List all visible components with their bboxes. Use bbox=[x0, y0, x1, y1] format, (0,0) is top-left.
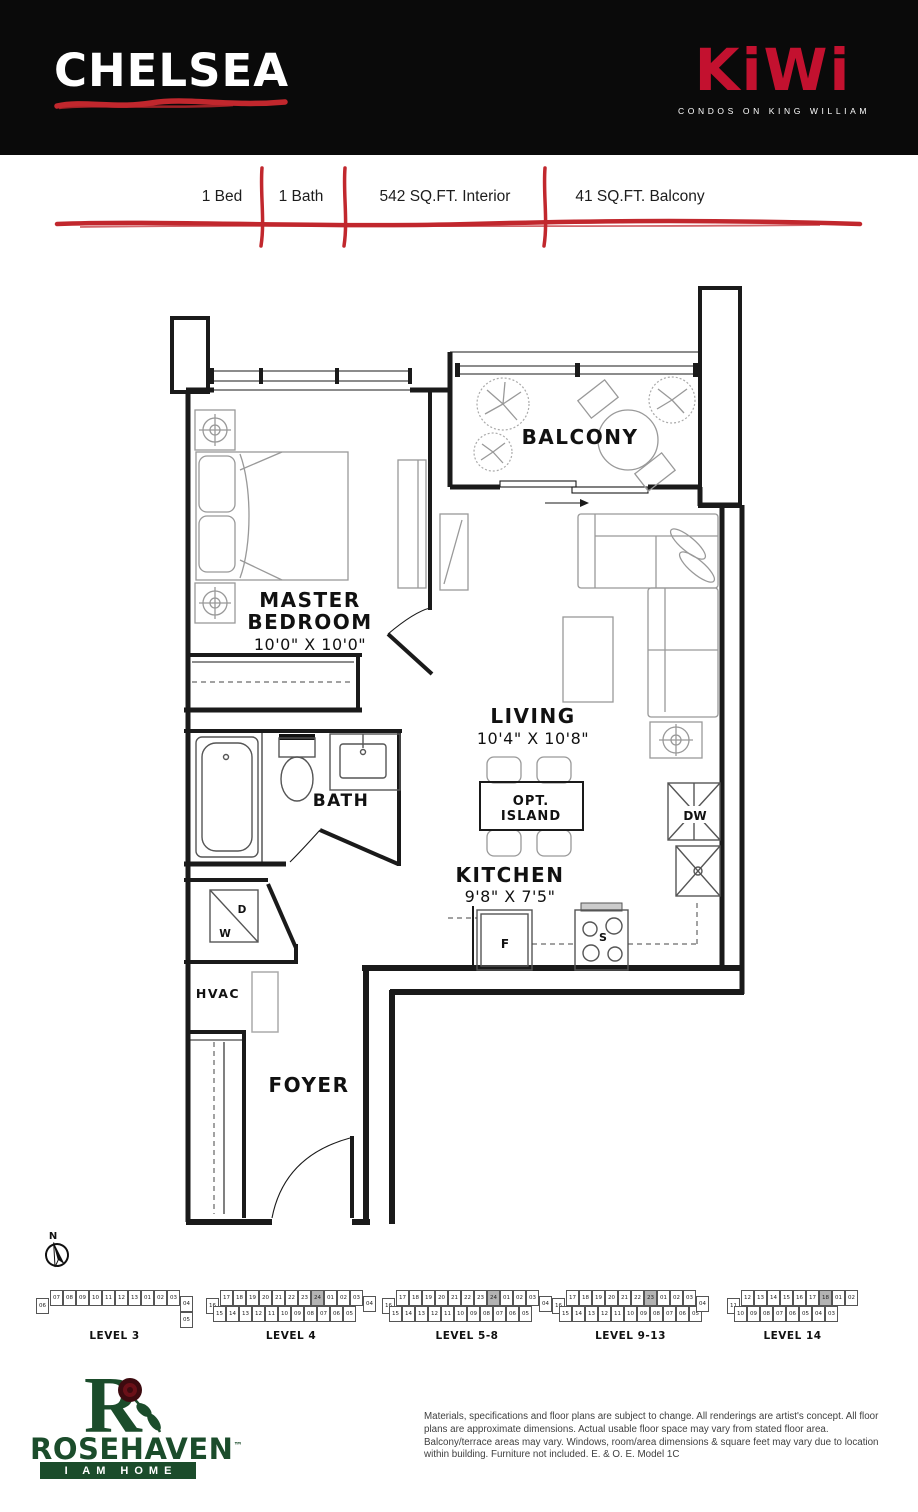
unit-cell-05: 05 bbox=[799, 1306, 812, 1322]
unit-cell-06: 06 bbox=[36, 1298, 49, 1314]
label-dryer: D bbox=[238, 904, 247, 916]
unit-cell-17: 17 bbox=[396, 1290, 409, 1306]
entry-door bbox=[272, 1136, 352, 1218]
washer-dryer bbox=[210, 890, 258, 942]
shrub-bottom-left bbox=[474, 433, 512, 471]
side-table-lamp bbox=[650, 722, 702, 758]
unit-cell-14: 14 bbox=[402, 1306, 415, 1322]
label-washer: W bbox=[219, 928, 231, 940]
page-title: CHELSEA bbox=[54, 44, 289, 97]
label-hvac: HVAC bbox=[196, 986, 240, 1001]
label-island-1: OPT. bbox=[513, 794, 549, 809]
unit-cell-10: 10 bbox=[89, 1290, 102, 1306]
unit-cell-24: 24 bbox=[487, 1290, 500, 1306]
unit-cell-20: 20 bbox=[435, 1290, 448, 1306]
unit-cell-13: 13 bbox=[585, 1306, 598, 1322]
bedroom-door bbox=[388, 608, 432, 674]
unit-cell-02: 02 bbox=[154, 1290, 167, 1306]
unit-cell-07: 07 bbox=[663, 1306, 676, 1322]
keyplan-label: LEVEL 4 bbox=[266, 1330, 316, 1342]
unit-cell-17: 17 bbox=[806, 1290, 819, 1306]
unit-cell-02: 02 bbox=[513, 1290, 526, 1306]
unit-cell-04: 04 bbox=[696, 1296, 709, 1312]
unit-cell-07: 07 bbox=[493, 1306, 506, 1322]
label-island-2: ISLAND bbox=[501, 809, 561, 824]
builder-name-text: ROSEHAVEN bbox=[30, 1432, 233, 1466]
unit-cell-06: 06 bbox=[330, 1306, 343, 1322]
unit-cell-12: 12 bbox=[598, 1306, 611, 1322]
bathtub bbox=[196, 733, 262, 862]
toilet bbox=[279, 734, 315, 801]
unit-cell-04: 04 bbox=[539, 1296, 552, 1312]
unit-cell-06: 06 bbox=[786, 1306, 799, 1322]
unit-cell-22: 22 bbox=[631, 1290, 644, 1306]
brand-logo-word: KiWi bbox=[678, 40, 868, 100]
sofa-sectional bbox=[578, 514, 718, 717]
unit-cell-13: 13 bbox=[754, 1290, 767, 1306]
unit-cell-01: 01 bbox=[832, 1290, 845, 1306]
label-kitchen: KITCHEN bbox=[456, 863, 565, 887]
unit-cell-22: 22 bbox=[285, 1290, 298, 1306]
unit-cell-13: 13 bbox=[239, 1306, 252, 1322]
hvac-shelf bbox=[252, 972, 278, 1032]
compass-north-label: N bbox=[49, 1231, 57, 1242]
floorplan-sheet: CHELSEA KiWi CONDOS ON KING WILLIAM 1 Be… bbox=[0, 0, 918, 1512]
unit-cell-11: 11 bbox=[102, 1290, 115, 1306]
kitchen-sink bbox=[676, 846, 720, 896]
coffee-table bbox=[563, 617, 613, 702]
label-living-dims: 10'4" X 10'8" bbox=[477, 729, 589, 748]
label-master-bedroom-2: BEDROOM bbox=[247, 610, 372, 634]
unit-cell-10: 10 bbox=[454, 1306, 467, 1322]
unit-cell-05: 05 bbox=[343, 1306, 356, 1322]
label-kitchen-dims: 9'8" X 7'5" bbox=[465, 887, 556, 906]
balcony-sliding-door bbox=[500, 481, 648, 507]
label-stove: S bbox=[599, 931, 607, 944]
label-living: LIVING bbox=[490, 704, 575, 728]
unit-cell-09: 09 bbox=[747, 1306, 760, 1322]
bedroom-closet bbox=[192, 662, 354, 682]
unit-cell-09: 09 bbox=[291, 1306, 304, 1322]
unit-cell-24: 24 bbox=[311, 1290, 324, 1306]
floorplan-drawing: N MASTER BEDROOM 10'0" X 10'0" BALCONY L… bbox=[0, 268, 918, 1278]
unit-cell-10: 10 bbox=[624, 1306, 637, 1322]
unit-cell-15: 15 bbox=[559, 1306, 572, 1322]
unit-cell-04: 04 bbox=[180, 1296, 193, 1312]
label-master-bedroom-1: MASTER bbox=[259, 588, 361, 612]
unit-cell-08: 08 bbox=[760, 1306, 773, 1322]
unit-cell-18: 18 bbox=[233, 1290, 246, 1306]
unit-cell-04: 04 bbox=[812, 1306, 825, 1322]
shrub-top-left bbox=[477, 378, 529, 430]
unit-cell-12: 12 bbox=[252, 1306, 265, 1322]
compass: N bbox=[43, 1231, 70, 1268]
unit-cell-15: 15 bbox=[213, 1306, 226, 1322]
label-bath: BATH bbox=[313, 791, 370, 811]
label-dishwasher: DW bbox=[683, 809, 706, 823]
label-balcony: BALCONY bbox=[522, 425, 639, 449]
title-brush-underline bbox=[53, 96, 293, 116]
unit-cell-08: 08 bbox=[480, 1306, 493, 1322]
builder-tagline: I AM HOME bbox=[59, 1465, 178, 1477]
brand-logo-tagline: CONDOS ON KING WILLIAM bbox=[678, 106, 868, 116]
unit-cell-22: 22 bbox=[461, 1290, 474, 1306]
builder-tm: ™ bbox=[233, 1441, 243, 1451]
tv-cabinet bbox=[440, 514, 468, 590]
counter-line bbox=[448, 900, 697, 944]
unit-cell-20: 20 bbox=[605, 1290, 618, 1306]
label-fridge: F bbox=[501, 937, 509, 951]
label-foyer: FOYER bbox=[269, 1073, 350, 1097]
bed bbox=[196, 452, 348, 580]
unit-cell-21: 21 bbox=[618, 1290, 631, 1306]
foyer-closet bbox=[190, 1040, 242, 1214]
keyplan-label: LEVEL 9-13 bbox=[595, 1330, 666, 1342]
unit-cell-08: 08 bbox=[304, 1306, 317, 1322]
disclaimer-text: Materials, specifications and floor plan… bbox=[424, 1411, 886, 1462]
unit-cell-10: 10 bbox=[734, 1306, 747, 1322]
unit-cell-04: 04 bbox=[363, 1296, 376, 1312]
unit-cell-21: 21 bbox=[448, 1290, 461, 1306]
unit-cell-23: 23 bbox=[474, 1290, 487, 1306]
unit-cell-08: 08 bbox=[63, 1290, 76, 1306]
unit-cell-14: 14 bbox=[572, 1306, 585, 1322]
keyplan-label: LEVEL 5-8 bbox=[436, 1330, 499, 1342]
unit-cell-17: 17 bbox=[220, 1290, 233, 1306]
unit-cell-01: 01 bbox=[657, 1290, 670, 1306]
unit-cell-18: 18 bbox=[819, 1290, 832, 1306]
keyplan-label: LEVEL 14 bbox=[763, 1330, 821, 1342]
unit-cell-07: 07 bbox=[773, 1306, 786, 1322]
spec-brush-rules bbox=[0, 158, 918, 268]
unit-cell-12: 12 bbox=[428, 1306, 441, 1322]
unit-cell-16: 16 bbox=[793, 1290, 806, 1306]
unit-cell-21: 21 bbox=[272, 1290, 285, 1306]
bath-door bbox=[290, 830, 398, 864]
brand-logo: KiWi CONDOS ON KING WILLIAM bbox=[678, 40, 868, 116]
unit-cell-12: 12 bbox=[741, 1290, 754, 1306]
nightstand-top bbox=[195, 410, 235, 450]
unit-cell-10: 10 bbox=[278, 1306, 291, 1322]
unit-cell-01: 01 bbox=[500, 1290, 513, 1306]
unit-cell-07: 07 bbox=[317, 1306, 330, 1322]
unit-cell-12: 12 bbox=[115, 1290, 128, 1306]
dresser bbox=[398, 460, 426, 588]
unit-cell-09: 09 bbox=[637, 1306, 650, 1322]
unit-cell-03: 03 bbox=[683, 1290, 696, 1306]
balcony-railing bbox=[455, 363, 698, 377]
unit-cell-15: 15 bbox=[780, 1290, 793, 1306]
unit-cell-17: 17 bbox=[566, 1290, 579, 1306]
header: CHELSEA KiWi CONDOS ON KING WILLIAM bbox=[0, 0, 918, 155]
unit-cell-03: 03 bbox=[350, 1290, 363, 1306]
unit-cell-11: 11 bbox=[441, 1306, 454, 1322]
unit-cell-09: 09 bbox=[467, 1306, 480, 1322]
unit-cell-03: 03 bbox=[167, 1290, 180, 1306]
unit-cell-19: 19 bbox=[592, 1290, 605, 1306]
bedroom-window bbox=[210, 368, 412, 390]
unit-cell-09: 09 bbox=[76, 1290, 89, 1306]
unit-cell-07: 07 bbox=[50, 1290, 63, 1306]
unit-cell-13: 13 bbox=[128, 1290, 141, 1306]
unit-cell-06: 06 bbox=[676, 1306, 689, 1322]
label-master-bedroom-dims: 10'0" X 10'0" bbox=[254, 635, 366, 654]
unit-cell-19: 19 bbox=[422, 1290, 435, 1306]
vanity-sink bbox=[330, 734, 400, 790]
unit-cell-01: 01 bbox=[141, 1290, 154, 1306]
unit-cell-14: 14 bbox=[767, 1290, 780, 1306]
unit-cell-05: 05 bbox=[180, 1312, 193, 1328]
unit-cell-02: 02 bbox=[337, 1290, 350, 1306]
unit-cell-20: 20 bbox=[259, 1290, 272, 1306]
unit-cell-02: 02 bbox=[670, 1290, 683, 1306]
unit-cell-01: 01 bbox=[324, 1290, 337, 1306]
unit-cell-11: 11 bbox=[611, 1306, 624, 1322]
unit-cell-05: 05 bbox=[519, 1306, 532, 1322]
laundry-door bbox=[268, 884, 296, 948]
nightstand-bottom bbox=[195, 583, 235, 623]
unit-cell-02: 02 bbox=[845, 1290, 858, 1306]
unit-cell-15: 15 bbox=[389, 1306, 402, 1322]
unit-cell-19: 19 bbox=[246, 1290, 259, 1306]
unit-cell-18: 18 bbox=[409, 1290, 422, 1306]
unit-cell-18: 18 bbox=[579, 1290, 592, 1306]
unit-cell-11: 11 bbox=[265, 1306, 278, 1322]
unit-cell-06: 06 bbox=[506, 1306, 519, 1322]
shrub-right bbox=[649, 377, 695, 423]
builder-tagline-bar: I AM HOME bbox=[40, 1462, 196, 1479]
unit-cell-08: 08 bbox=[650, 1306, 663, 1322]
unit-cell-03: 03 bbox=[526, 1290, 539, 1306]
unit-cell-13: 13 bbox=[415, 1306, 428, 1322]
unit-cell-23: 23 bbox=[298, 1290, 311, 1306]
unit-cell-03: 03 bbox=[825, 1306, 838, 1322]
builder-name: ROSEHAVEN™ bbox=[30, 1432, 243, 1466]
keyplan-label: LEVEL 3 bbox=[89, 1330, 139, 1342]
unit-cell-14: 14 bbox=[226, 1306, 239, 1322]
unit-cell-23: 23 bbox=[644, 1290, 657, 1306]
